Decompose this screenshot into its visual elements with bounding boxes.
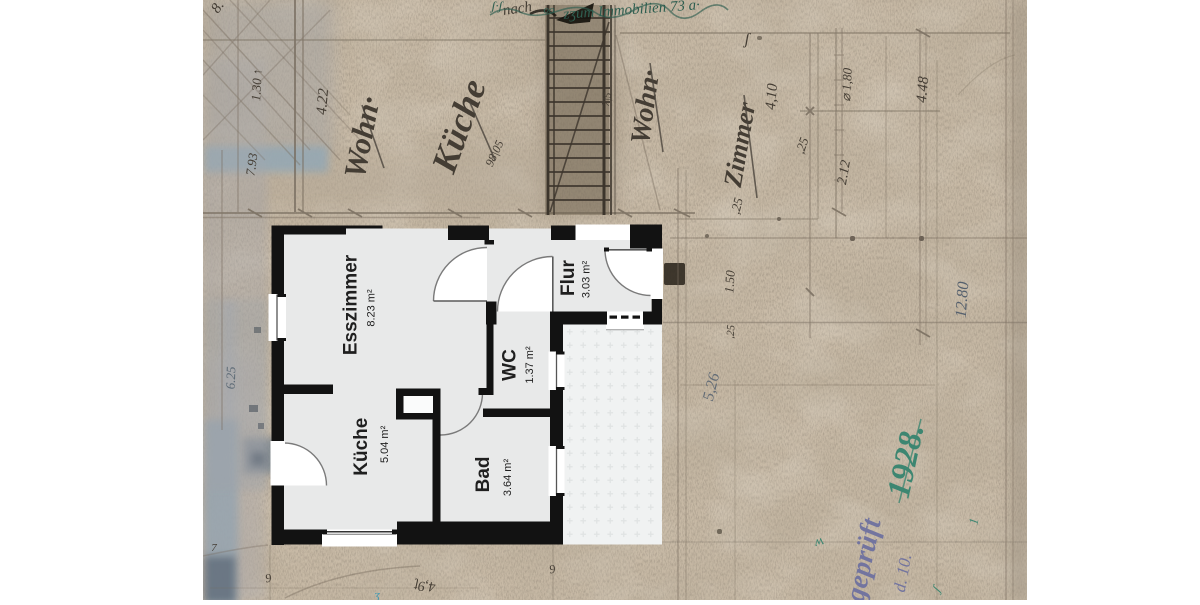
svg-text:Flur: Flur [558,259,579,295]
svg-text:4.48: 4.48 [914,75,932,103]
svg-text:Küche: Küche [351,418,372,476]
svg-text:8.23 m²: 8.23 m² [366,289,378,327]
svg-text:3.64 m²: 3.64 m² [502,459,514,497]
svg-text:4,10: 4,10 [763,82,781,110]
svg-text:ʒ: ʒ [373,587,380,600]
svg-text:7: 7 [211,542,217,554]
svg-text:3.03 m²: 3.03 m² [581,261,593,299]
svg-text:4,9ʈ: 4,9ʈ [413,577,436,593]
svg-text:6.25: 6.25 [223,366,239,390]
svg-text:WC: WC [500,349,521,381]
svg-text:12.80: 12.80 [953,281,972,318]
svg-text:5.04 m²: 5.04 m² [379,425,391,463]
svg-text:1.50: 1.50 [721,269,738,293]
svg-text:7|5: 7|5 [600,91,614,107]
svg-text:⌀ 1,80: ⌀ 1,80 [838,67,855,102]
svg-text:Bad: Bad [473,456,494,492]
svg-text:1.30 ↑: 1.30 ↑ [248,68,265,101]
svg-text:4.22: 4.22 [314,87,332,115]
svg-text:1.37 m²: 1.37 m² [524,346,536,384]
svg-text:7.93: 7.93 [243,152,261,177]
svg-text:,25: ,25 [725,324,738,339]
svg-text:Esszimmer: Esszimmer [341,254,362,355]
